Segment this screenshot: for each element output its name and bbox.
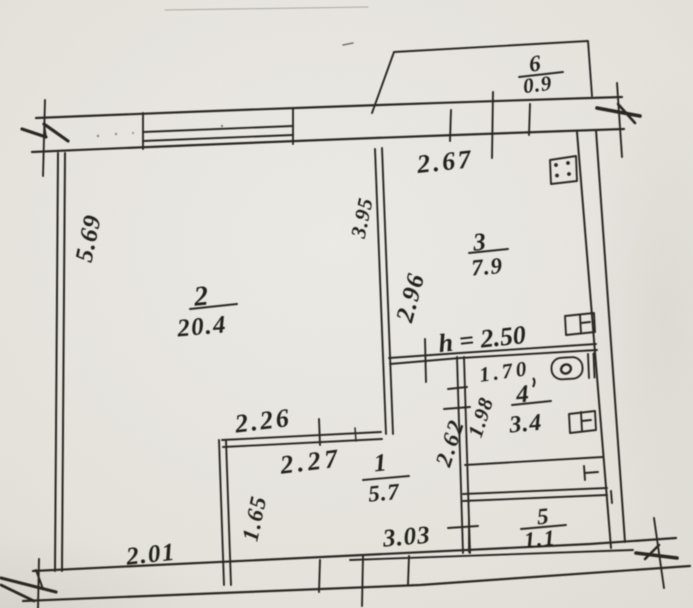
svg-text:7.9: 7.9: [470, 253, 504, 281]
svg-text:2.67: 2.67: [415, 144, 475, 179]
svg-text:20.4: 20.4: [175, 311, 228, 342]
svg-text:3.03: 3.03: [381, 522, 432, 553]
svg-text:1.1: 1.1: [523, 525, 557, 553]
svg-text:3.4: 3.4: [507, 410, 543, 439]
svg-text:5.7: 5.7: [367, 479, 401, 507]
svg-text:0.9: 0.9: [522, 71, 554, 98]
svg-text:1: 1: [373, 449, 388, 477]
svg-text:2.01: 2.01: [124, 539, 177, 571]
